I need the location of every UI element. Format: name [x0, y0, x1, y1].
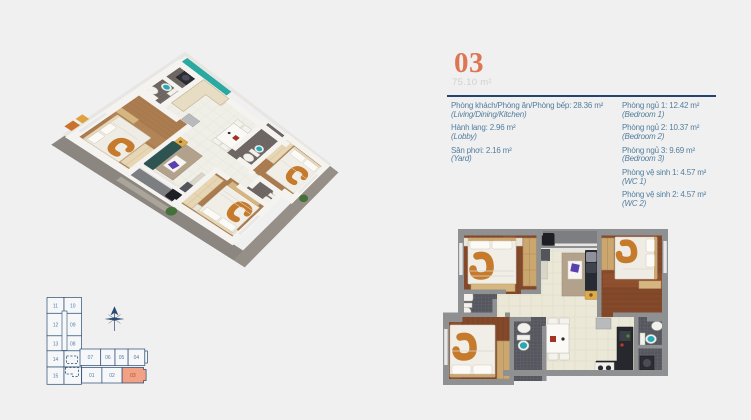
svg-text:09: 09	[70, 323, 76, 329]
svg-text:14: 14	[53, 357, 59, 363]
svg-text:11: 11	[53, 303, 58, 309]
svg-text:05: 05	[119, 355, 125, 361]
svg-text:03: 03	[130, 373, 136, 379]
svg-text:04: 04	[134, 355, 140, 361]
svg-text:12: 12	[53, 323, 59, 329]
svg-text:13: 13	[53, 341, 59, 347]
svg-text:01: 01	[89, 373, 95, 379]
svg-text:07: 07	[88, 355, 94, 361]
svg-text:15: 15	[53, 374, 59, 380]
svg-text:08: 08	[70, 341, 76, 347]
svg-text:10: 10	[70, 303, 76, 309]
svg-text:02: 02	[109, 373, 115, 379]
svg-text:06: 06	[105, 355, 111, 361]
